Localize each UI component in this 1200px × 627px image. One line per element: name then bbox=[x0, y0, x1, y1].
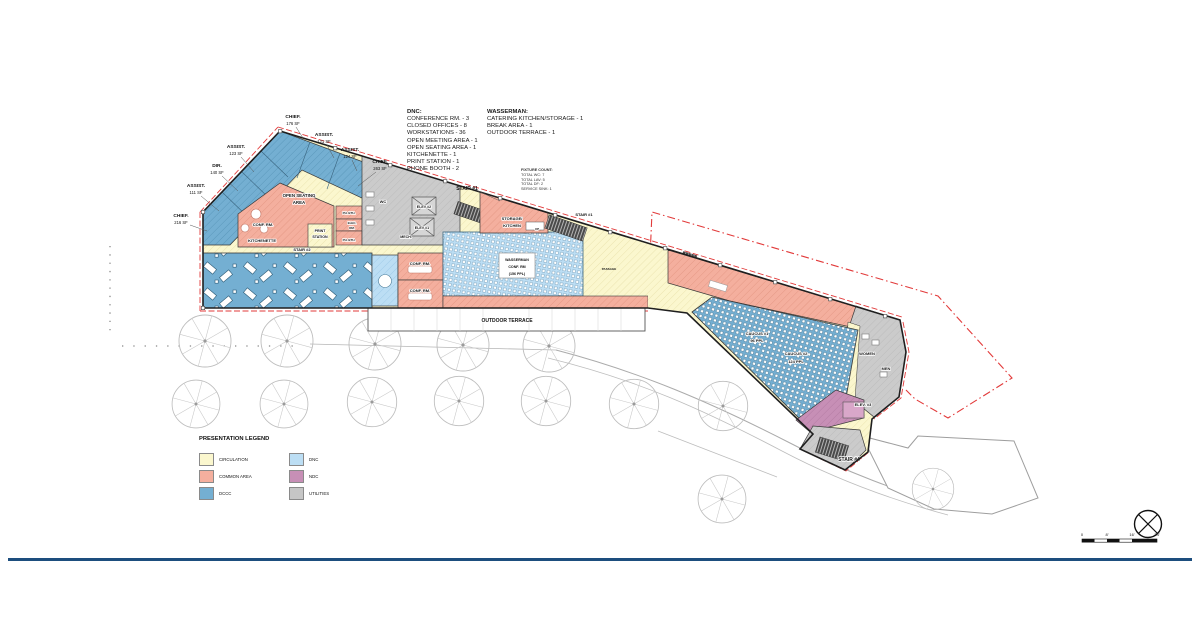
street-edge-line bbox=[310, 344, 556, 350]
dnc-note-line: CLOSED OFFICES - 8 bbox=[407, 123, 478, 130]
label-kitchenette: KITCHENETTE bbox=[248, 238, 276, 243]
callout-office-area: 263 SF bbox=[373, 166, 387, 171]
callout-office-name: ASSIST. bbox=[187, 183, 205, 189]
north-arrow-icon bbox=[1135, 511, 1162, 538]
label-elev-3: ELEV. #3 bbox=[855, 402, 873, 407]
callout-office-name: CHIEF. bbox=[372, 159, 387, 165]
label-outdoor-terrace: OUTDOOR TERRACE bbox=[481, 318, 533, 324]
dnc-note-line: OPEN MEETING AREA - 1 bbox=[407, 138, 478, 145]
legend-swatch bbox=[289, 453, 304, 466]
callout-office-area: 123 SF bbox=[229, 151, 243, 156]
tree-icon bbox=[698, 381, 747, 430]
legend-swatch bbox=[289, 487, 304, 500]
label-elec-1: ELEC. bbox=[348, 221, 357, 225]
label-conf-rm: CONF. RM. bbox=[253, 222, 273, 227]
legend-label: CIRCULATION bbox=[219, 457, 248, 462]
label-ph-bth-lower: PH. BTH. bbox=[343, 238, 356, 242]
callout-office-name: CHIEF. bbox=[173, 213, 188, 219]
legend-label: COMMON AREA bbox=[219, 474, 252, 479]
label-storage-2: KITCHEN bbox=[503, 223, 521, 228]
tree-icon bbox=[261, 315, 313, 367]
presentation-slide: OUTDOOR TERRACE bbox=[0, 0, 1200, 627]
label-caucus1-name: CAUCUS #1 bbox=[746, 331, 769, 336]
callout-office-area: 111 SF bbox=[190, 190, 203, 195]
label-stair-1-outer: STAIR #1 bbox=[456, 186, 478, 192]
label-conf-upper: CONF. RM. bbox=[410, 261, 430, 266]
legend-item-common-area: COMMON AREA bbox=[199, 468, 279, 485]
scale-tick-label: 16' bbox=[1129, 532, 1134, 537]
legend-item-circulation: CIRCULATION bbox=[199, 451, 279, 468]
callout-office-name: ASSIST. bbox=[341, 147, 359, 153]
callout-office-name: ASSIST. bbox=[315, 132, 333, 138]
wasserman-heading: WASSERMAN: bbox=[487, 109, 583, 116]
legend-label: DCCC bbox=[219, 491, 231, 496]
zone-dccc-workstations bbox=[203, 253, 372, 308]
legend-swatch bbox=[289, 470, 304, 483]
dnc-note-line: PHONE BOOTH - 2 bbox=[407, 166, 478, 173]
label-elec-2: RM. bbox=[349, 226, 355, 230]
wc-fixtures bbox=[366, 192, 374, 225]
tree-icon bbox=[698, 475, 746, 523]
label-storage-1: STORAGE/ bbox=[502, 216, 524, 221]
dnc-note-line: PRINT STATION - 1 bbox=[407, 159, 478, 166]
callout-office-name: CHIEF. bbox=[285, 114, 300, 120]
wasserman-note-line: BREAK AREA - 1 bbox=[487, 123, 583, 130]
label-caucus2-ppl: 124 PPL bbox=[788, 359, 804, 364]
callout-office-area: 140 SF bbox=[210, 170, 224, 175]
tree-icon bbox=[609, 379, 658, 428]
tree-icon bbox=[521, 376, 570, 425]
wasserman-program-notes: WASSERMAN: CATERING KITCHEN/STORAGE - 1 … bbox=[487, 109, 583, 138]
callout-office-name: ASSIST. bbox=[227, 144, 245, 150]
adjacent-building-outline bbox=[862, 436, 1038, 514]
legend-label: NDC bbox=[309, 474, 318, 479]
wasserman-note-line: OUTDOOR TERRACE - 1 bbox=[487, 130, 583, 137]
scale-tick-label: 8' bbox=[1106, 532, 1109, 537]
legend-swatch bbox=[199, 470, 214, 483]
label-up: UP bbox=[535, 227, 539, 231]
label-open-seating-2: AREA bbox=[293, 200, 306, 205]
label-stair-2: STAIR #2 bbox=[293, 247, 311, 252]
floor-plan-svg: OUTDOOR TERRACE bbox=[0, 0, 1200, 627]
label-elev-2: ELEV #2 bbox=[417, 205, 431, 209]
fixture-count-notes: FIXTURE COUNT: TOTAL WC: 7 TOTAL LAV: 5 … bbox=[521, 168, 553, 192]
legend-swatch bbox=[199, 487, 214, 500]
road-line-short bbox=[658, 431, 777, 477]
label-women: WOMEN bbox=[859, 351, 875, 356]
slide-divider-rule bbox=[8, 558, 1192, 561]
dnc-heading: DNC: bbox=[407, 109, 478, 116]
tree-icon bbox=[260, 380, 308, 428]
tree-icon bbox=[172, 380, 220, 428]
dnc-program-notes: DNC: CONFERENCE RM. - 3 CLOSED OFFICES -… bbox=[407, 109, 478, 173]
callout-office-area: 124 SF bbox=[343, 154, 357, 159]
label-men: MEN bbox=[882, 366, 891, 371]
label-caucus2-name: CAUCUS #2 bbox=[785, 351, 808, 356]
conf-table-lower bbox=[408, 293, 432, 300]
callout-office-area: 176 SF bbox=[286, 121, 300, 126]
legend-label: DNC bbox=[309, 457, 318, 462]
legend-item-utilities: UTILITIES bbox=[289, 485, 369, 502]
label-wc: WC bbox=[380, 199, 387, 204]
label-conf-lower: CONF. RM. bbox=[410, 288, 430, 293]
dnc-note-line: WORKSTATIONS - 36 bbox=[407, 130, 478, 137]
zone-common-south-band bbox=[443, 296, 648, 308]
callout-office-area: 121 SF bbox=[317, 139, 331, 144]
presentation-legend: PRESENTATION LEGEND CIRCULATION DNC COMM… bbox=[199, 436, 389, 502]
callout-office-name: DIR. bbox=[212, 163, 222, 169]
tree-icon bbox=[347, 377, 396, 426]
meeting-round-table bbox=[379, 275, 392, 288]
callout-office-area: 216 SF bbox=[174, 220, 188, 225]
label-open-seating-1: OPEN SEATING bbox=[283, 193, 316, 198]
tree-icon bbox=[179, 315, 231, 367]
label-elev-1: ELEV #1 bbox=[415, 226, 429, 230]
label-mech: MECH. bbox=[400, 235, 412, 239]
tree-icon bbox=[434, 376, 483, 425]
label-stair-1-inner: STAIR #1 bbox=[575, 212, 593, 217]
dnc-note-line: OPEN SEATING AREA - 1 bbox=[407, 145, 478, 152]
scale-tick-label: 0 bbox=[1081, 532, 1084, 537]
label-wasserman-2: CONF. RM bbox=[508, 265, 525, 269]
outdoor-terrace: OUTDOOR TERRACE bbox=[368, 308, 645, 331]
legend-title: PRESENTATION LEGEND bbox=[199, 436, 389, 442]
label-caucus1-ppl: 96 PPL bbox=[750, 338, 764, 343]
label-passage: PASSAGE bbox=[602, 267, 616, 271]
legend-item-ndc: NDC bbox=[289, 468, 369, 485]
fixture-line: SERVICE SINK: 1 bbox=[521, 187, 553, 192]
label-print-2: STATION bbox=[312, 235, 328, 239]
label-wasserman-3: (156 PPL) bbox=[509, 272, 526, 276]
legend-item-dccc: DCCC bbox=[199, 485, 279, 502]
legend-swatch bbox=[199, 453, 214, 466]
label-ph-bth-upper: PH. BTH. bbox=[343, 211, 356, 215]
label-print-1: PRINT bbox=[315, 229, 327, 233]
wasserman-note-line: CATERING KITCHEN/STORAGE - 1 bbox=[487, 116, 583, 123]
dnc-note-line: KITCHENETTE - 1 bbox=[407, 152, 478, 159]
legend-label: UTILITIES bbox=[309, 491, 329, 496]
label-wasserman-1: WASSERMAN bbox=[505, 258, 529, 262]
legend-item-dnc: DNC bbox=[289, 451, 369, 468]
conf-table-upper bbox=[408, 266, 432, 273]
dnc-note-line: CONFERENCE RM. - 3 bbox=[407, 116, 478, 123]
